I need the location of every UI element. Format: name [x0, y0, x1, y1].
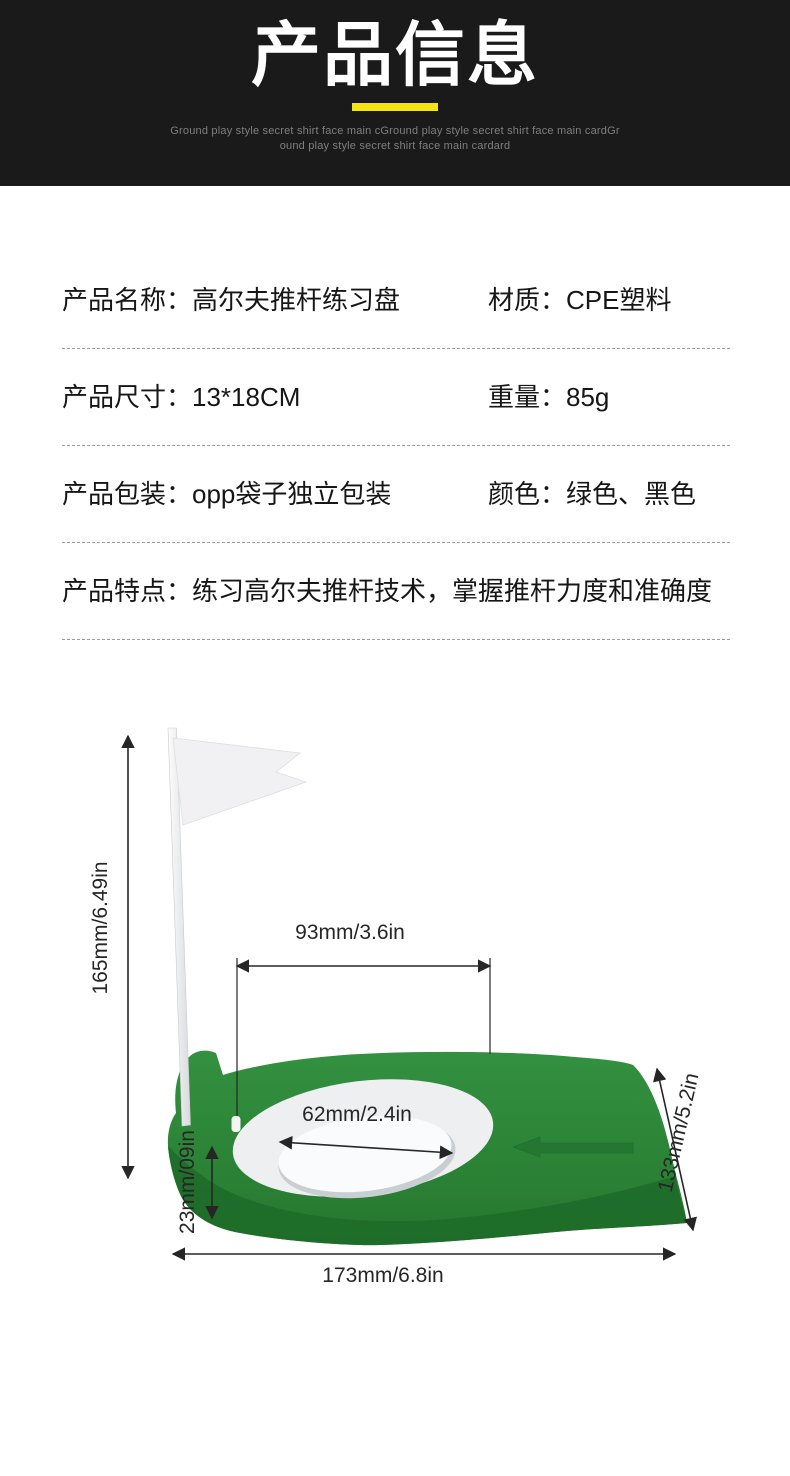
dim-thickness-label: 23mm/09in: [176, 1130, 199, 1234]
spec-row-packing-color: 产品包装：opp袋子独立包装 颜色：绿色、黑色: [62, 446, 730, 542]
spec-value-features: 练习高尔夫推杆技术，掌握推杆力度和准确度: [192, 576, 712, 606]
product-dimension-figure: 165mm/6.49in 93mm/3.6in 62mm/2.4in 23mm/…: [0, 640, 790, 1306]
spec-label-features: 产品特点：: [62, 576, 192, 606]
spec-label-weight: 重量：: [488, 382, 566, 412]
spec-label-packing: 产品包装：: [62, 479, 192, 509]
flag-socket: [232, 1116, 241, 1132]
spec-label-size: 产品尺寸：: [62, 382, 192, 412]
spec-value-packing: opp袋子独立包装: [192, 479, 391, 509]
header-subtitle: Ground play style secret shirt face main…: [0, 124, 790, 154]
dimension-diagram: 165mm/6.49in 93mm/3.6in 62mm/2.4in 23mm/…: [45, 706, 745, 1306]
spec-label-material: 材质：: [488, 285, 566, 315]
spec-value-material: CPE塑料: [566, 285, 671, 315]
page-title: 产品信息: [0, 0, 790, 90]
dim-top-width-label: 93mm/3.6in: [295, 921, 405, 944]
spec-value-size: 13*18CM: [192, 382, 300, 412]
product-info-page: 产品信息 Ground play style secret shirt face…: [0, 0, 790, 1476]
spec-value-color: 绿色、黑色: [566, 479, 696, 509]
header-subtitle-line2: ound play style secret shirt face main c…: [0, 139, 790, 154]
spec-label-color: 颜色：: [488, 479, 566, 509]
header-subtitle-line1: Ground play style secret shirt face main…: [0, 124, 790, 139]
spec-row-name-material: 产品名称：高尔夫推杆练习盘 材质：CPE塑料: [62, 252, 730, 348]
spec-row-features: 产品特点：练习高尔夫推杆技术，掌握推杆力度和准确度: [62, 543, 730, 639]
dim-hole-label: 62mm/2.4in: [302, 1103, 412, 1126]
flag-pennant-icon: [173, 738, 306, 825]
dim-base-width-label: 173mm/6.8in: [322, 1264, 443, 1287]
dim-height-label: 165mm/6.49in: [89, 861, 112, 994]
spec-list: 产品名称：高尔夫推杆练习盘 材质：CPE塑料 产品尺寸：13*18CM 重量：8…: [0, 186, 790, 640]
spec-value-weight: 85g: [566, 382, 609, 412]
putting-disc-graphic: [168, 1051, 687, 1245]
title-underline-bar: [352, 103, 438, 111]
spec-row-size-weight: 产品尺寸：13*18CM 重量：85g: [62, 349, 730, 445]
spec-label-name: 产品名称：: [62, 285, 192, 315]
spec-value-name: 高尔夫推杆练习盘: [192, 285, 400, 315]
header-banner: 产品信息 Ground play style secret shirt face…: [0, 0, 790, 186]
